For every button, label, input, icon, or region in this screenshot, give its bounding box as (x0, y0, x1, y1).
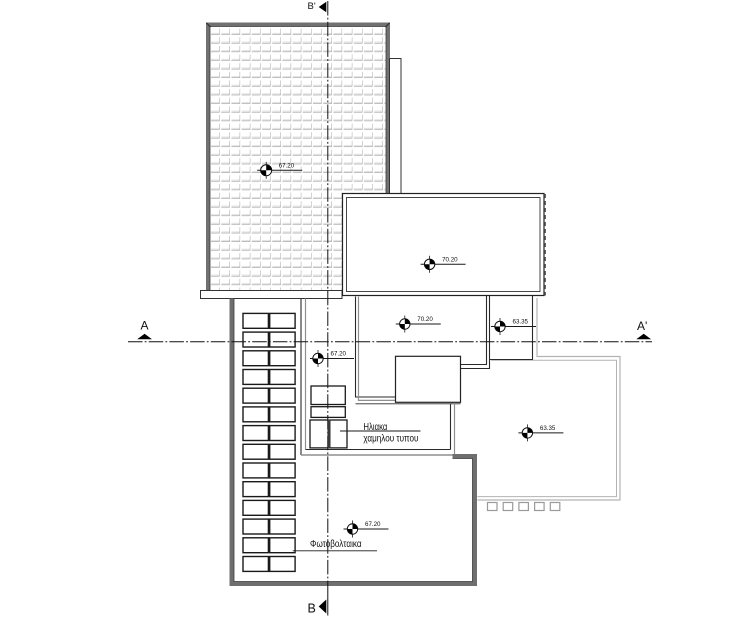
svg-text:A': A' (637, 319, 647, 333)
svg-text:B: B (308, 601, 316, 615)
svg-text:67.20: 67.20 (279, 163, 295, 170)
svg-text:χαμηλου τυπου: χαμηλου τυπου (363, 434, 418, 445)
svg-text:A: A (141, 319, 149, 333)
svg-text:B': B' (308, 1, 316, 12)
svg-text:63.35: 63.35 (513, 319, 529, 326)
svg-text:70.20: 70.20 (442, 257, 458, 264)
svg-text:70.20: 70.20 (417, 316, 433, 323)
svg-text:Ηλιακα: Ηλιακα (363, 422, 387, 433)
svg-text:Φωτοβολταικα: Φωτοβολταικα (310, 538, 362, 550)
svg-text:67.20: 67.20 (365, 521, 381, 528)
svg-text:63.35: 63.35 (540, 425, 556, 432)
svg-text:67.20: 67.20 (331, 351, 347, 358)
